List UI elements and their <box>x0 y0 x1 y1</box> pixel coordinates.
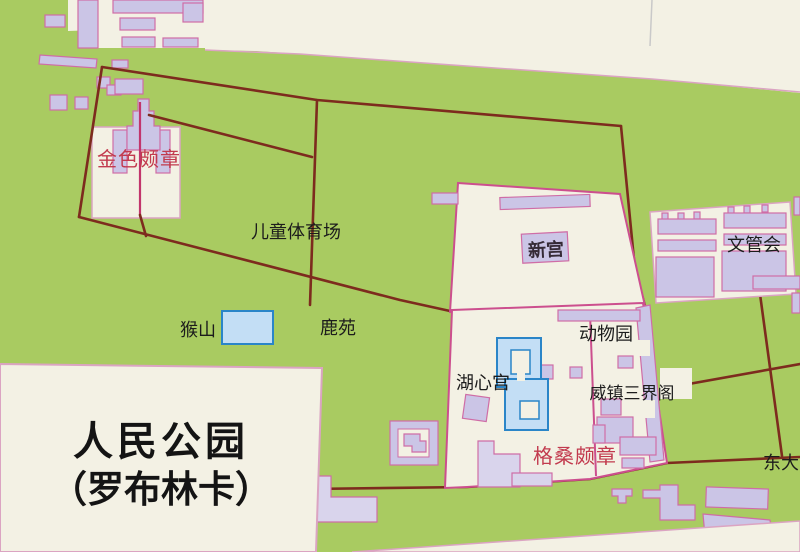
building <box>112 60 128 68</box>
label-gesang-pozhang: 格桑颇章 <box>533 444 617 468</box>
building <box>45 15 65 27</box>
lake-island-stem <box>517 372 525 381</box>
building <box>558 310 640 321</box>
monkey-hill-pool <box>222 311 273 344</box>
building <box>762 205 768 212</box>
building <box>593 425 605 443</box>
building <box>500 194 590 209</box>
building <box>658 240 716 251</box>
building <box>115 79 143 94</box>
label-jinse-pozhang: 金色颇章 <box>97 147 181 171</box>
label-luyuan: 鹿苑 <box>320 318 356 339</box>
label-xingong: 新宫 <box>527 238 564 262</box>
label-houshan: 猴山 <box>180 320 216 341</box>
building <box>620 437 656 455</box>
building <box>512 473 552 486</box>
building <box>50 95 67 110</box>
building <box>694 212 700 219</box>
title-block: 人民公园 （罗布林卡） <box>0 364 322 552</box>
label-wenguanhui: 文管会 <box>727 235 781 256</box>
strip-gap <box>638 340 650 356</box>
label-dongda: 东大 <box>763 453 799 474</box>
building <box>183 3 203 22</box>
label-weizhen-sanjiege: 威镇三界阁 <box>590 384 675 404</box>
lake-island <box>511 350 530 374</box>
label-ertong-tiyuchang: 儿童体育场 <box>251 222 341 243</box>
building <box>794 197 800 215</box>
building <box>658 219 716 234</box>
building <box>724 213 786 228</box>
park-subtitle: （罗布林卡） <box>50 468 272 511</box>
building <box>75 97 88 109</box>
building <box>122 37 155 47</box>
park-title: 人民公园 <box>73 419 249 465</box>
building <box>120 18 155 30</box>
building <box>744 206 750 213</box>
lake-island-south <box>520 401 539 419</box>
building <box>432 193 458 204</box>
building <box>618 356 633 368</box>
map-canvas: 人民公园 （罗布林卡） 金色颇章 儿童体育场 新宫 文管会 猴山 鹿苑 动物园 … <box>0 0 800 552</box>
pavilion <box>390 421 438 465</box>
building <box>656 257 714 297</box>
building <box>78 0 98 48</box>
building <box>706 487 769 509</box>
building <box>622 458 644 468</box>
building <box>462 394 489 421</box>
park-map: 人民公园 （罗布林卡） 金色颇章 儿童体育场 新宫 文管会 猴山 鹿苑 动物园 … <box>0 0 800 552</box>
building <box>570 367 582 378</box>
label-huxingong: 湖心宫 <box>456 373 510 394</box>
building <box>163 38 198 47</box>
building <box>753 276 800 289</box>
building <box>792 293 800 313</box>
label-dongwuyuan: 动物园 <box>579 324 633 345</box>
